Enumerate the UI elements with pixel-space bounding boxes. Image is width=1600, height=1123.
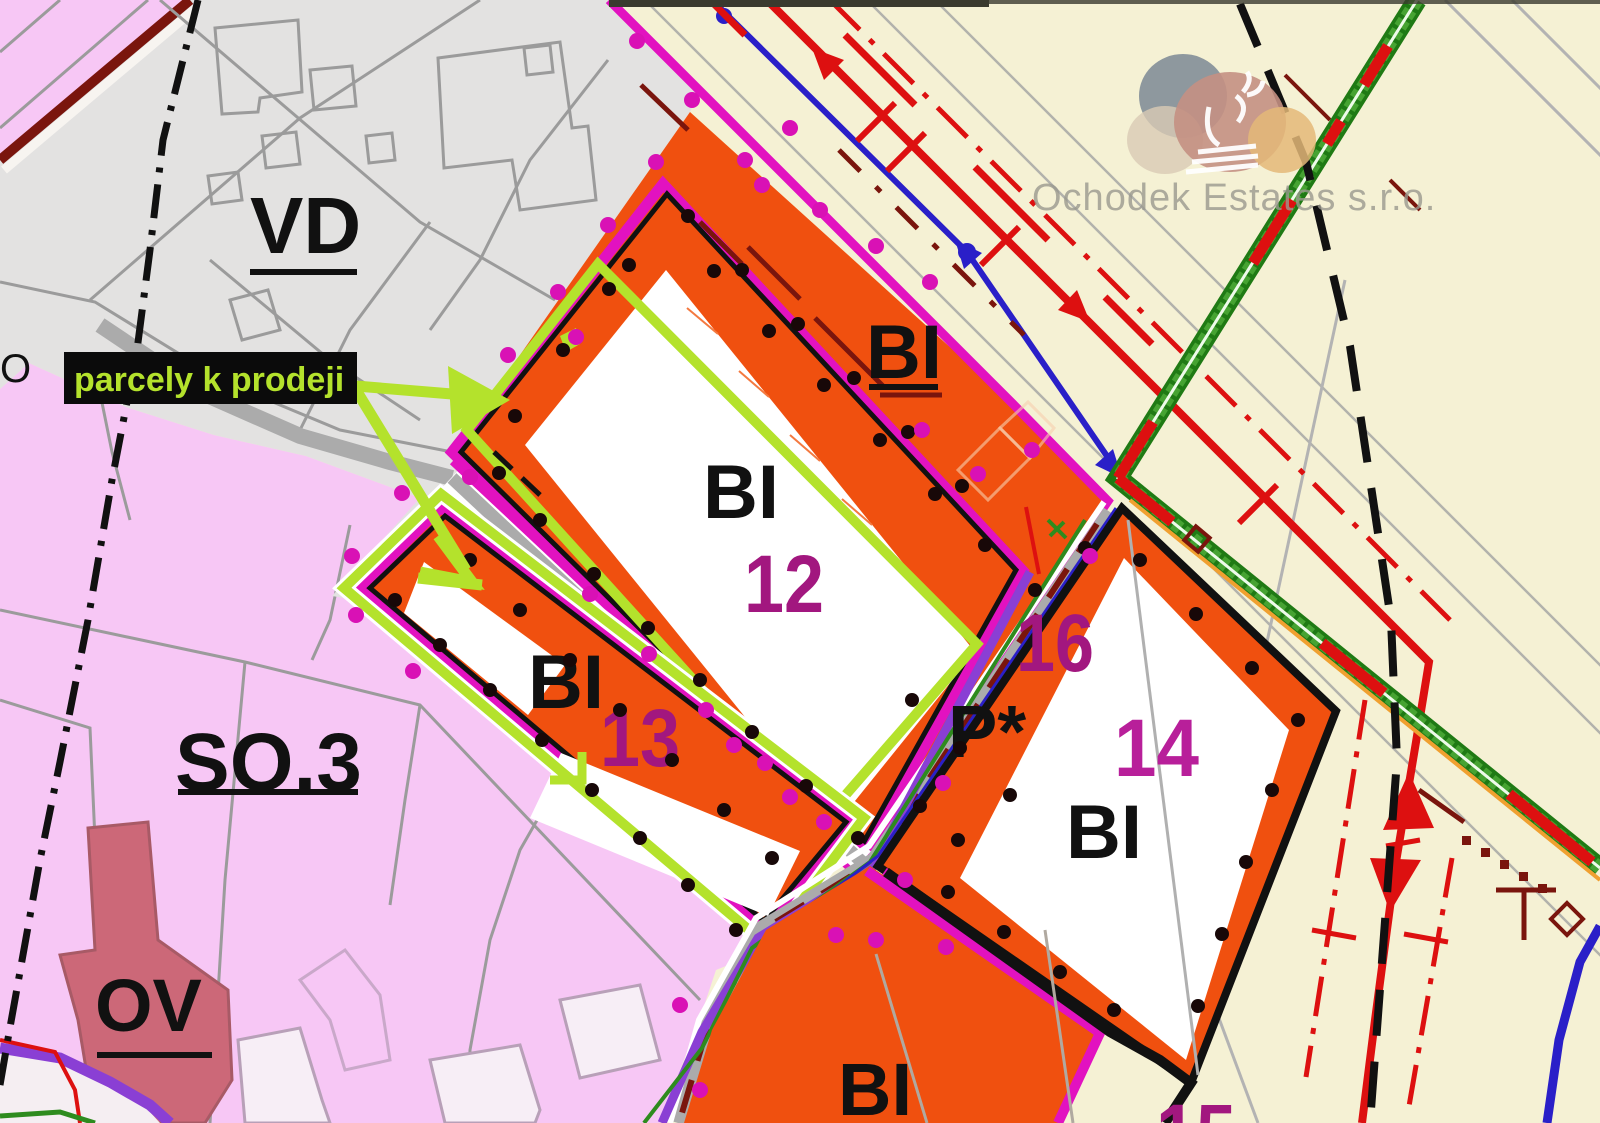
svg-text:VD: VD (250, 181, 361, 270)
svg-text:BI: BI (1066, 790, 1142, 875)
svg-text:15: 15 (1156, 1088, 1236, 1123)
svg-text:12: 12 (744, 539, 824, 630)
svg-text:16: 16 (1016, 598, 1094, 689)
svg-text:BI: BI (703, 450, 779, 535)
svg-text:Ochodek Estates s.r.o.: Ochodek Estates s.r.o. (1032, 177, 1436, 219)
svg-text:O: O (0, 347, 31, 391)
svg-text:13: 13 (600, 693, 680, 784)
svg-text:OV: OV (95, 964, 202, 1047)
svg-text:parcely k prodeji: parcely k prodeji (74, 361, 344, 399)
svg-text:BI: BI (866, 310, 942, 395)
svg-text:P*: P* (948, 690, 1026, 773)
svg-text:14: 14 (1114, 703, 1199, 794)
svg-text:BI: BI (838, 1048, 912, 1123)
svg-text:BI: BI (528, 640, 604, 725)
